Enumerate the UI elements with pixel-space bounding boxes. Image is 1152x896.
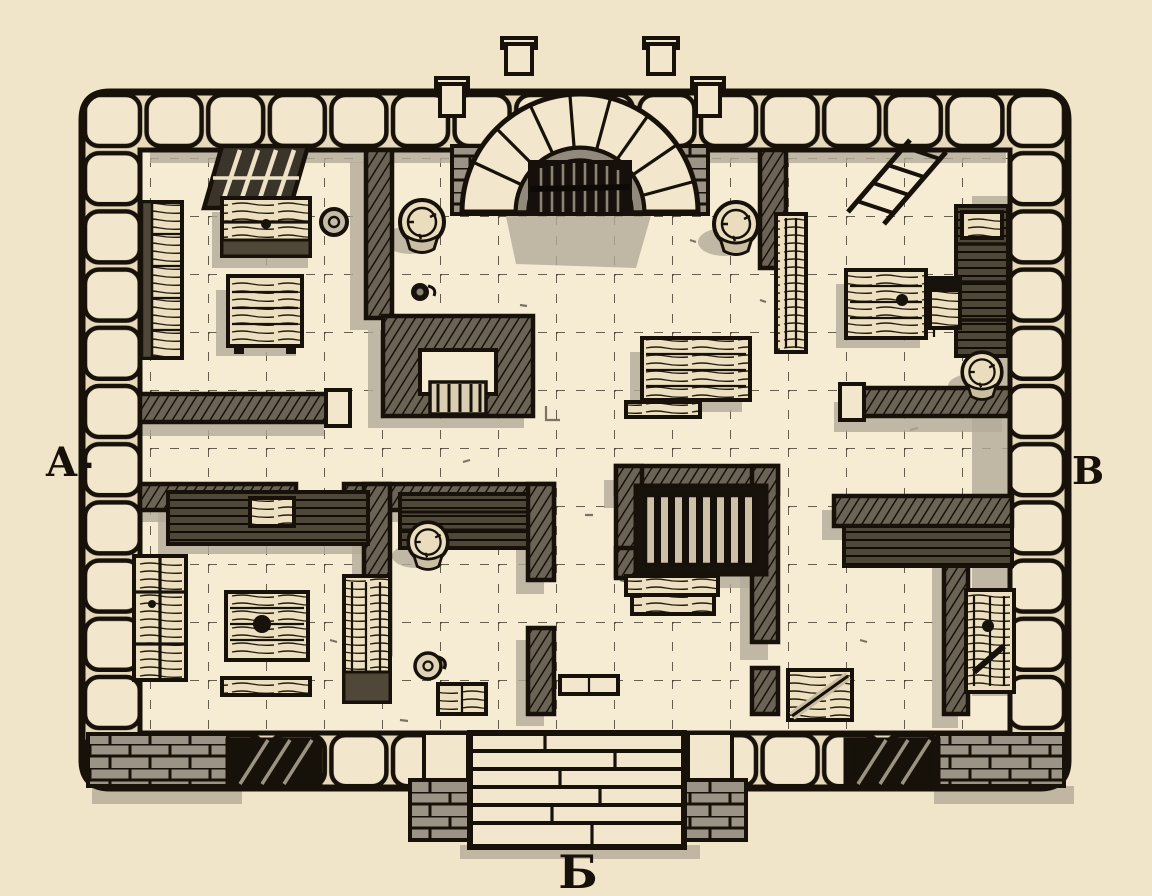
slatted-bed: [636, 486, 766, 574]
tall-cabinet: [344, 576, 390, 702]
floor-grate-window-southwest: [228, 740, 320, 784]
bench: [626, 402, 700, 417]
long-table: [642, 338, 750, 400]
wall-counter-se: [844, 526, 1012, 566]
brick-apron-southeast: [938, 734, 1064, 786]
wooden-door-panel: [966, 590, 1014, 692]
crate-with-plank: [788, 670, 852, 720]
work-table: [846, 270, 926, 338]
step-chest: [626, 576, 718, 614]
table-with-jug: [226, 592, 308, 660]
wall-bench: [776, 214, 806, 352]
dungeon-map-svg: A- B Б: [0, 0, 1152, 896]
bookshelf: [142, 202, 182, 358]
brick-apron-southwest: [88, 734, 228, 786]
small-crate: [560, 676, 618, 694]
south-staircase: [410, 733, 746, 847]
bench-sw: [222, 678, 310, 695]
crate-storage: [438, 684, 486, 714]
section-label-b: B: [1072, 448, 1104, 493]
wall-counter-sw: [168, 492, 368, 544]
cabinet: [134, 556, 186, 680]
chair: [928, 276, 962, 337]
section-label-a: A-: [45, 439, 94, 486]
clay-pot: [321, 209, 347, 235]
wall-shelves: [956, 206, 1008, 356]
floor-grate-window-southeast: [846, 740, 938, 784]
dungeon-map-page: A- B Б: [0, 0, 1152, 896]
section-label-b-cyrillic: Б: [558, 845, 597, 896]
wooden-chest: [222, 198, 310, 256]
portcullis: [528, 160, 632, 214]
stone-hearth: [383, 316, 533, 416]
square-table-nw: [228, 276, 302, 354]
